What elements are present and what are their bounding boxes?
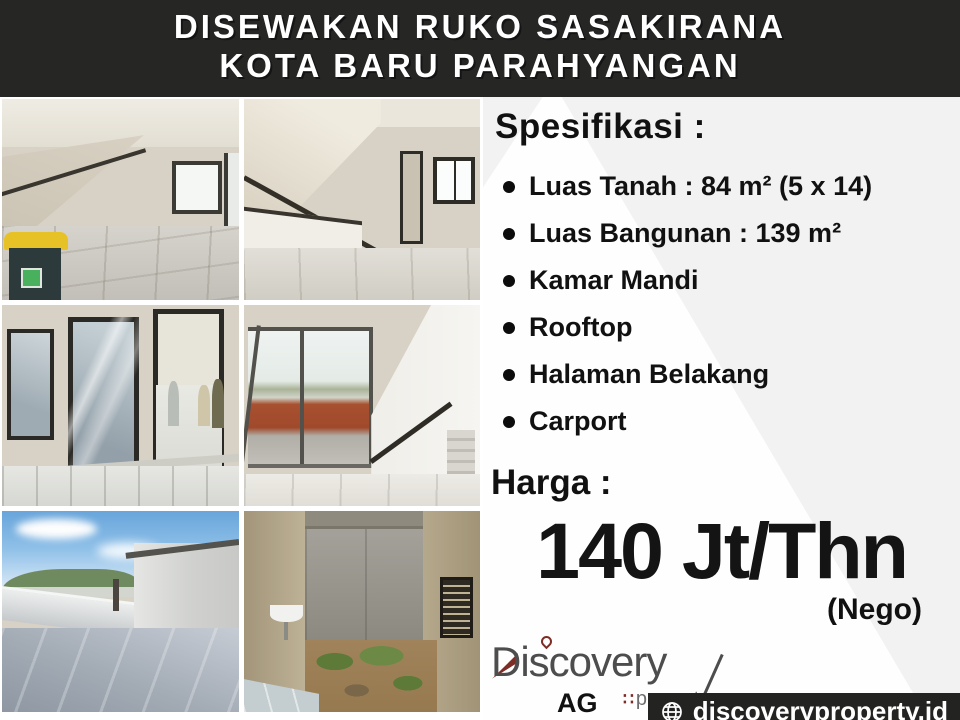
spec-item-label: Carport <box>529 406 627 437</box>
property-photo-facade <box>2 305 239 506</box>
spec-item-label: Luas Tanah : 84 m² (5 x 14) <box>529 171 872 202</box>
flyer-title-line1: DISEWAKAN RUKO SASAKIRANA <box>174 8 786 45</box>
person <box>212 379 224 427</box>
window-mullion <box>454 157 456 203</box>
info-panel: Spesifikasi : Luas Tanah : 84 m² (5 x 14… <box>483 97 960 720</box>
bullet-icon <box>503 181 515 193</box>
door-frame <box>248 464 371 468</box>
price-heading: Harga : <box>491 463 960 503</box>
door-frame <box>248 327 371 331</box>
person <box>198 385 210 425</box>
spec-item-label: Luas Bangunan : 139 m² <box>529 218 841 249</box>
spec-item-kamar-mandi: Kamar Mandi <box>503 257 960 304</box>
property-photo-backyard <box>244 511 481 712</box>
spec-item-rooftop: Rooftop <box>503 304 960 351</box>
flyer-title-line2: KOTA BARU PARAHYANGAN <box>219 47 740 84</box>
person <box>168 381 180 425</box>
cloud <box>16 519 96 539</box>
squares-icon: ∷ <box>623 690 634 709</box>
spec-item-label: Kamar Mandi <box>529 265 699 296</box>
doorway <box>400 151 424 243</box>
pole <box>113 579 119 611</box>
globe-icon <box>660 700 684 720</box>
wall-sink <box>270 605 303 621</box>
property-photo-interior-1 <box>2 99 239 300</box>
tiled-floor <box>244 248 481 300</box>
bullet-icon <box>503 322 515 334</box>
glass-reflection <box>68 317 139 474</box>
trash-bin-sticker <box>21 268 42 288</box>
spec-list: Luas Tanah : 84 m² (5 x 14) Luas Banguna… <box>483 163 960 445</box>
sink-pipe <box>284 622 289 640</box>
concrete-floor <box>2 628 239 712</box>
terrace-view-red-fence <box>248 329 371 466</box>
website-url: discoveryproperty.id <box>693 696 948 720</box>
spec-heading: Spesifikasi : <box>495 107 960 147</box>
agent-initials: AG <box>557 688 598 719</box>
bullet-icon <box>503 369 515 381</box>
balcony-floor <box>2 466 239 506</box>
logo-brand-text: Discovery <box>491 638 666 686</box>
spec-item-luas-bangunan: Luas Bangunan : 139 m² <box>503 210 960 257</box>
flyer-root: DISEWAKAN RUKO SASAKIRANA KOTA BARU PARA… <box>0 0 960 720</box>
bullet-icon <box>503 275 515 287</box>
bullet-icon <box>503 228 515 240</box>
property-photo-terrace-room <box>244 305 481 506</box>
slatted-window <box>440 577 473 637</box>
tiled-floor <box>244 474 481 506</box>
glass-pane <box>7 329 54 440</box>
spec-item-label: Halaman Belakang <box>529 359 769 390</box>
spec-item-luas-tanah: Luas Tanah : 84 m² (5 x 14) <box>503 163 960 210</box>
spec-item-label: Rooftop <box>529 312 632 343</box>
property-photo-rooftop <box>2 511 239 712</box>
photo-grid <box>0 97 483 720</box>
spec-item-halaman-belakang: Halaman Belakang <box>503 351 960 398</box>
price-value: 140 Jt/Thn <box>483 505 960 597</box>
bullet-icon <box>503 416 515 428</box>
negotiable-note: (Nego) <box>483 593 922 627</box>
website-bar: discoveryproperty.id <box>648 693 960 720</box>
spec-item-carport: Carport <box>503 398 960 445</box>
header-banner: DISEWAKAN RUKO SASAKIRANA KOTA BARU PARA… <box>0 0 960 97</box>
door-frame <box>300 327 304 468</box>
window <box>172 161 222 213</box>
property-photo-interior-2 <box>244 99 481 300</box>
concrete-wall <box>305 529 428 644</box>
